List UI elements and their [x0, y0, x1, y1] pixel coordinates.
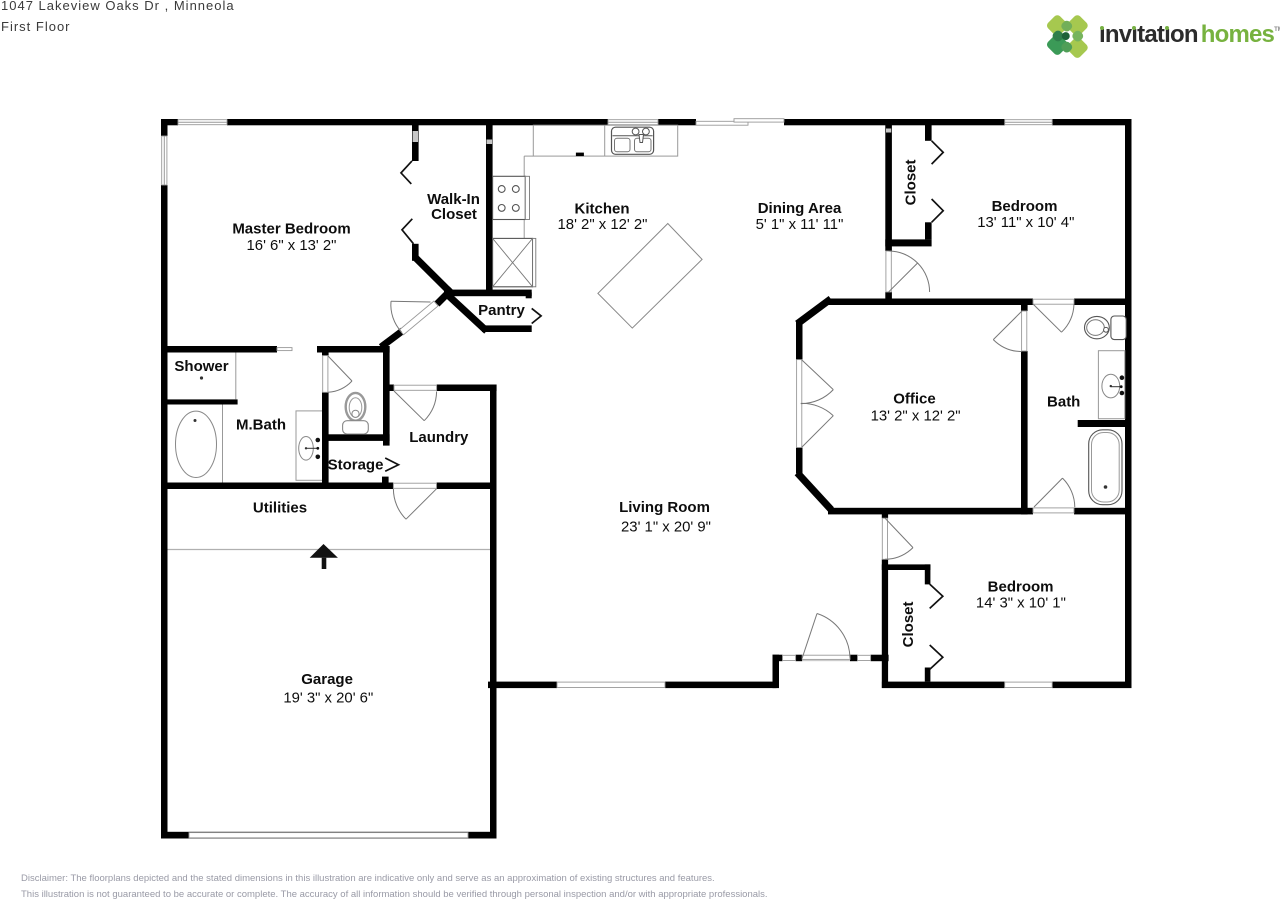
svg-text:Shower: Shower [174, 358, 228, 375]
svg-text:Office: Office [893, 391, 936, 408]
svg-text:Storage: Storage [328, 456, 384, 473]
svg-text:Bedroom: Bedroom [992, 198, 1058, 215]
svg-text:Bath: Bath [1047, 393, 1080, 410]
svg-text:18' 2" x 12' 2": 18' 2" x 12' 2" [558, 217, 648, 233]
svg-text:23' 1" x 20' 9": 23' 1" x 20' 9" [621, 520, 711, 536]
svg-text:5' 1" x 11' 11": 5' 1" x 11' 11" [756, 217, 844, 233]
svg-text:Master Bedroom: Master Bedroom [232, 221, 350, 238]
svg-text:Kitchen: Kitchen [574, 201, 629, 218]
svg-text:Utilities: Utilities [253, 500, 307, 517]
svg-text:Pantry: Pantry [478, 302, 525, 319]
svg-text:Bedroom: Bedroom [988, 579, 1054, 596]
svg-text:Living Room: Living Room [619, 499, 710, 516]
svg-text:16' 6" x 13' 2": 16' 6" x 13' 2" [247, 238, 337, 254]
svg-text:Garage: Garage [301, 671, 353, 688]
svg-text:Laundry: Laundry [409, 429, 469, 446]
svg-text:Closet: Closet [900, 601, 917, 647]
svg-text:Dining Area: Dining Area [758, 200, 842, 217]
svg-text:13' 11" x 10' 4": 13' 11" x 10' 4" [977, 215, 1074, 231]
svg-text:Closet: Closet [431, 206, 477, 223]
svg-text:14' 3" x 10' 1": 14' 3" x 10' 1" [976, 596, 1066, 612]
svg-text:19' 3" x 20' 6": 19' 3" x 20' 6" [283, 690, 373, 706]
svg-text:M.Bath: M.Bath [236, 417, 286, 434]
svg-text:13' 2" x 12' 2": 13' 2" x 12' 2" [871, 409, 961, 425]
svg-text:Closet: Closet [903, 159, 920, 205]
